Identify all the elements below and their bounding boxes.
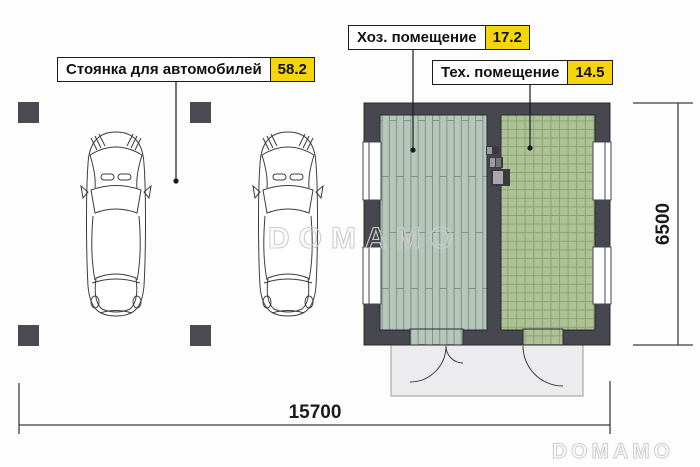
label-tech-text: Тех. помещение: [433, 61, 567, 84]
watermark-bottom: DOMAMO: [552, 440, 674, 463]
watermark-center: DOMAMO: [268, 222, 462, 255]
label-parking-area: 58.2: [270, 58, 314, 81]
floor-plan-canvas: 15700 6500 DOMAMO DOMAMO Стоянка для авт…: [0, 0, 700, 467]
window: [593, 142, 611, 200]
label-utility-room: Хоз. помещение 17.2: [348, 25, 530, 50]
carport-post: [18, 102, 39, 123]
leader-dot: [410, 147, 415, 152]
window: [363, 142, 381, 200]
label-tech-area: 14.5: [567, 61, 611, 84]
carport-post: [190, 102, 211, 123]
car-top-view: [81, 132, 151, 316]
carport-post: [190, 325, 211, 346]
window: [363, 247, 381, 304]
carport-post: [18, 325, 39, 346]
door-opening: [523, 329, 563, 345]
tech-room-floor: [501, 115, 595, 330]
window: [593, 247, 611, 304]
label-tech-room: Тех. помещение 14.5: [432, 60, 613, 85]
label-utility-area: 17.2: [485, 26, 529, 49]
leader-dot: [527, 145, 532, 150]
porch: [391, 345, 583, 396]
leader-dot: [173, 178, 178, 183]
label-utility-text: Хоз. помещение: [349, 26, 485, 49]
label-parking: Стоянка для автомобилей 58.2: [57, 57, 315, 82]
label-parking-text: Стоянка для автомобилей: [58, 58, 270, 81]
dimension-height-text: 6500: [653, 203, 674, 245]
dimension-width-text: 15700: [289, 402, 342, 423]
door-opening: [410, 329, 463, 345]
